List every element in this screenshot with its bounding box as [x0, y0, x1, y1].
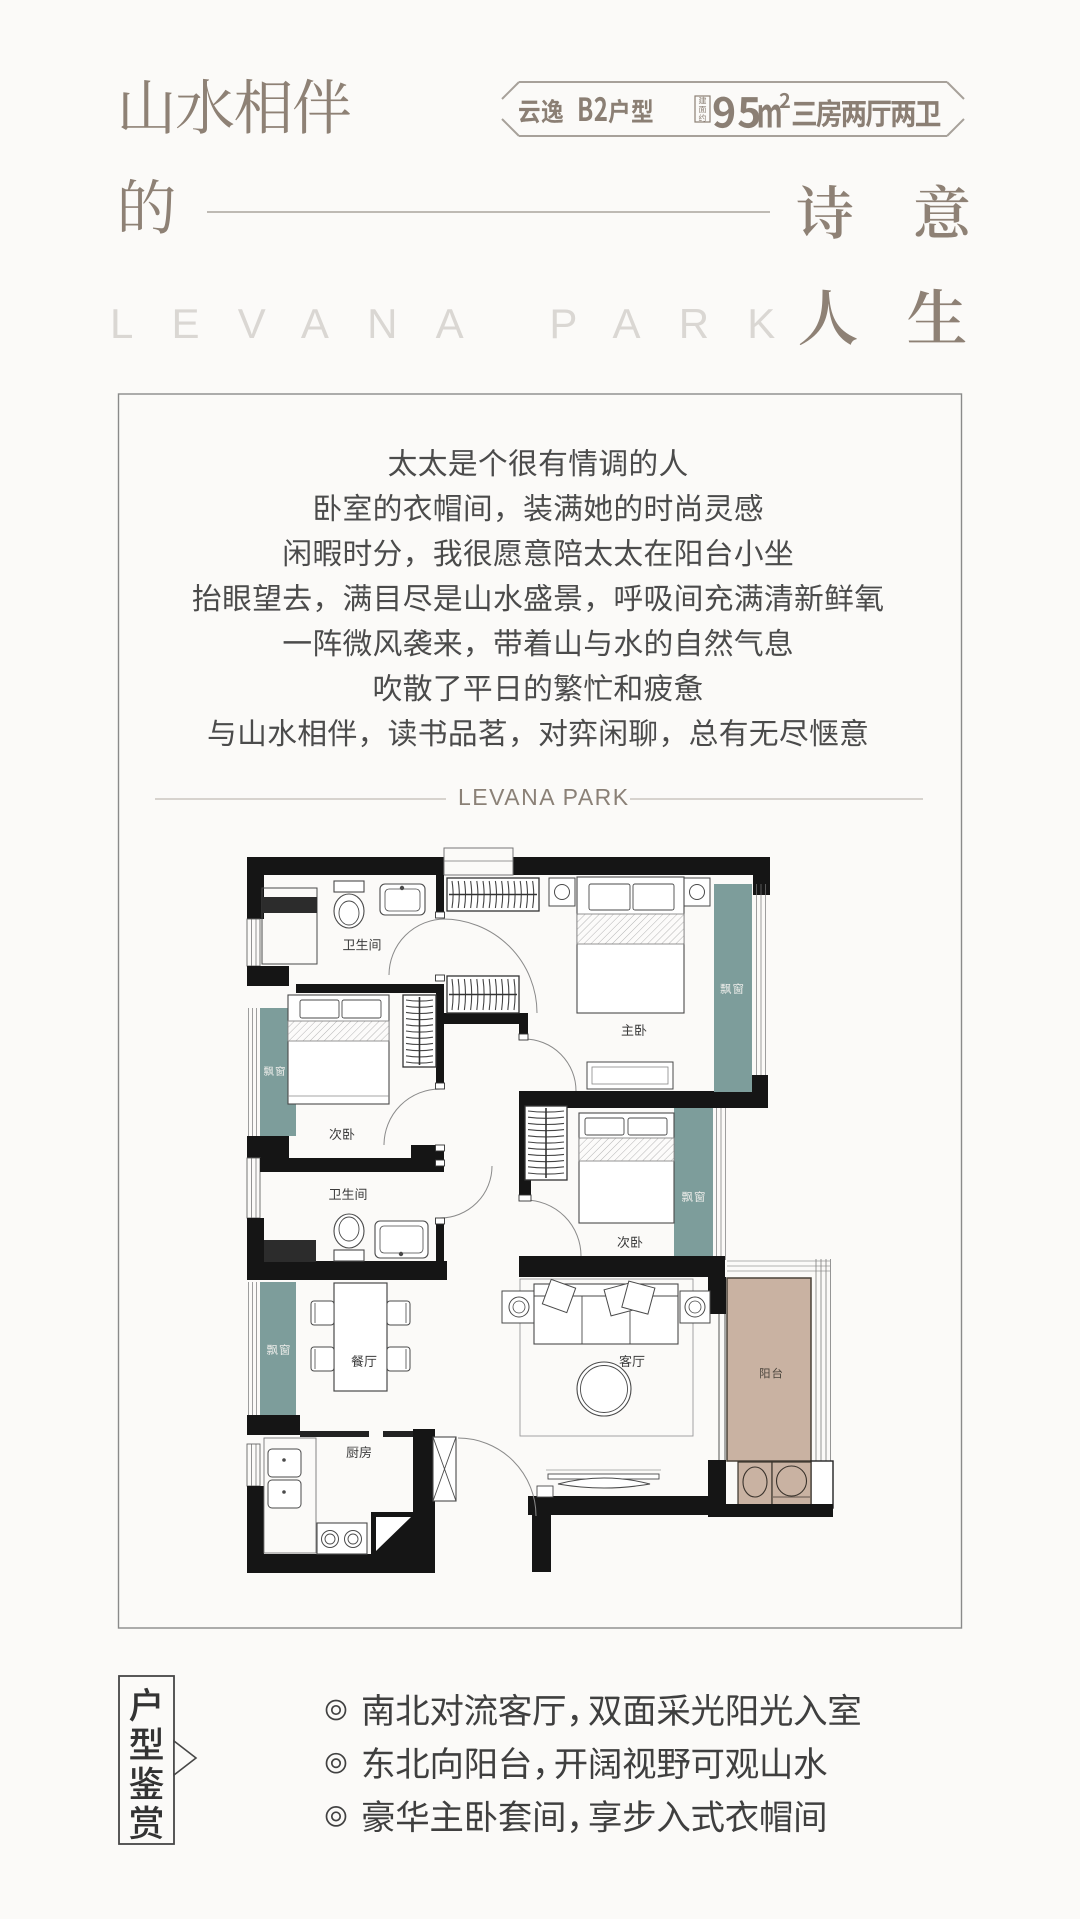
svg-text:LEVANA PARK: LEVANA PARK	[110, 300, 813, 347]
svg-text:LEVANA PARK: LEVANA PARK	[458, 784, 630, 810]
